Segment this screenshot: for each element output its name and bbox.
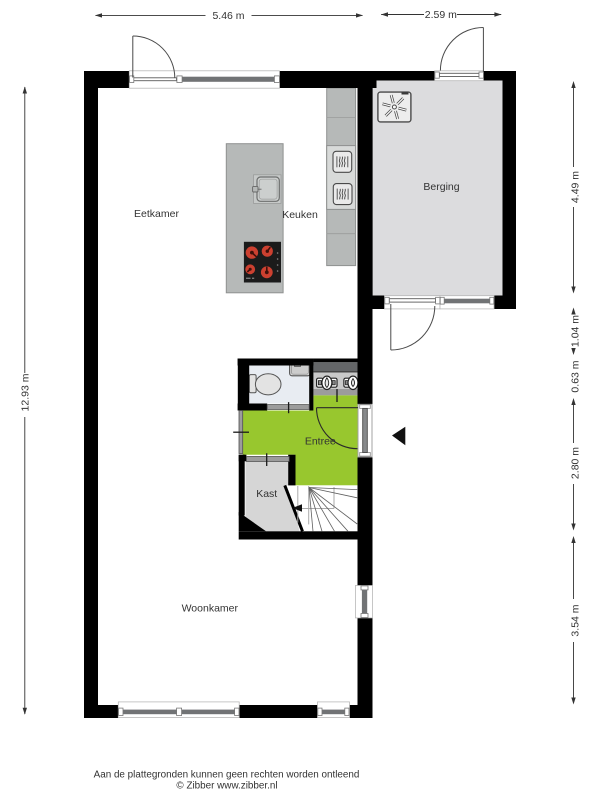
svg-text:Berging: Berging <box>423 181 459 193</box>
svg-text:Kast: Kast <box>256 488 277 500</box>
svg-text:© Zibber www.zibber.nl: © Zibber www.zibber.nl <box>176 781 277 792</box>
svg-text:3.54 m: 3.54 m <box>570 604 582 636</box>
svg-text:Entree: Entree <box>305 436 336 448</box>
svg-text:12.93 m: 12.93 m <box>20 373 32 411</box>
svg-text:2.80 m: 2.80 m <box>570 447 582 479</box>
svg-text:Eetkamer: Eetkamer <box>134 208 179 220</box>
svg-text:Aan de plattegronden kunnen ge: Aan de plattegronden kunnen geen rechten… <box>94 770 360 781</box>
svg-text:4.49 m: 4.49 m <box>570 171 582 203</box>
svg-text:0.63 m: 0.63 m <box>570 360 582 392</box>
svg-text:1.04 m: 1.04 m <box>570 315 582 347</box>
svg-text:5.46 m: 5.46 m <box>212 10 244 22</box>
svg-text:2.59 m: 2.59 m <box>425 9 457 21</box>
svg-text:Keuken: Keuken <box>282 209 318 221</box>
svg-text:Woonkamer: Woonkamer <box>182 602 239 614</box>
